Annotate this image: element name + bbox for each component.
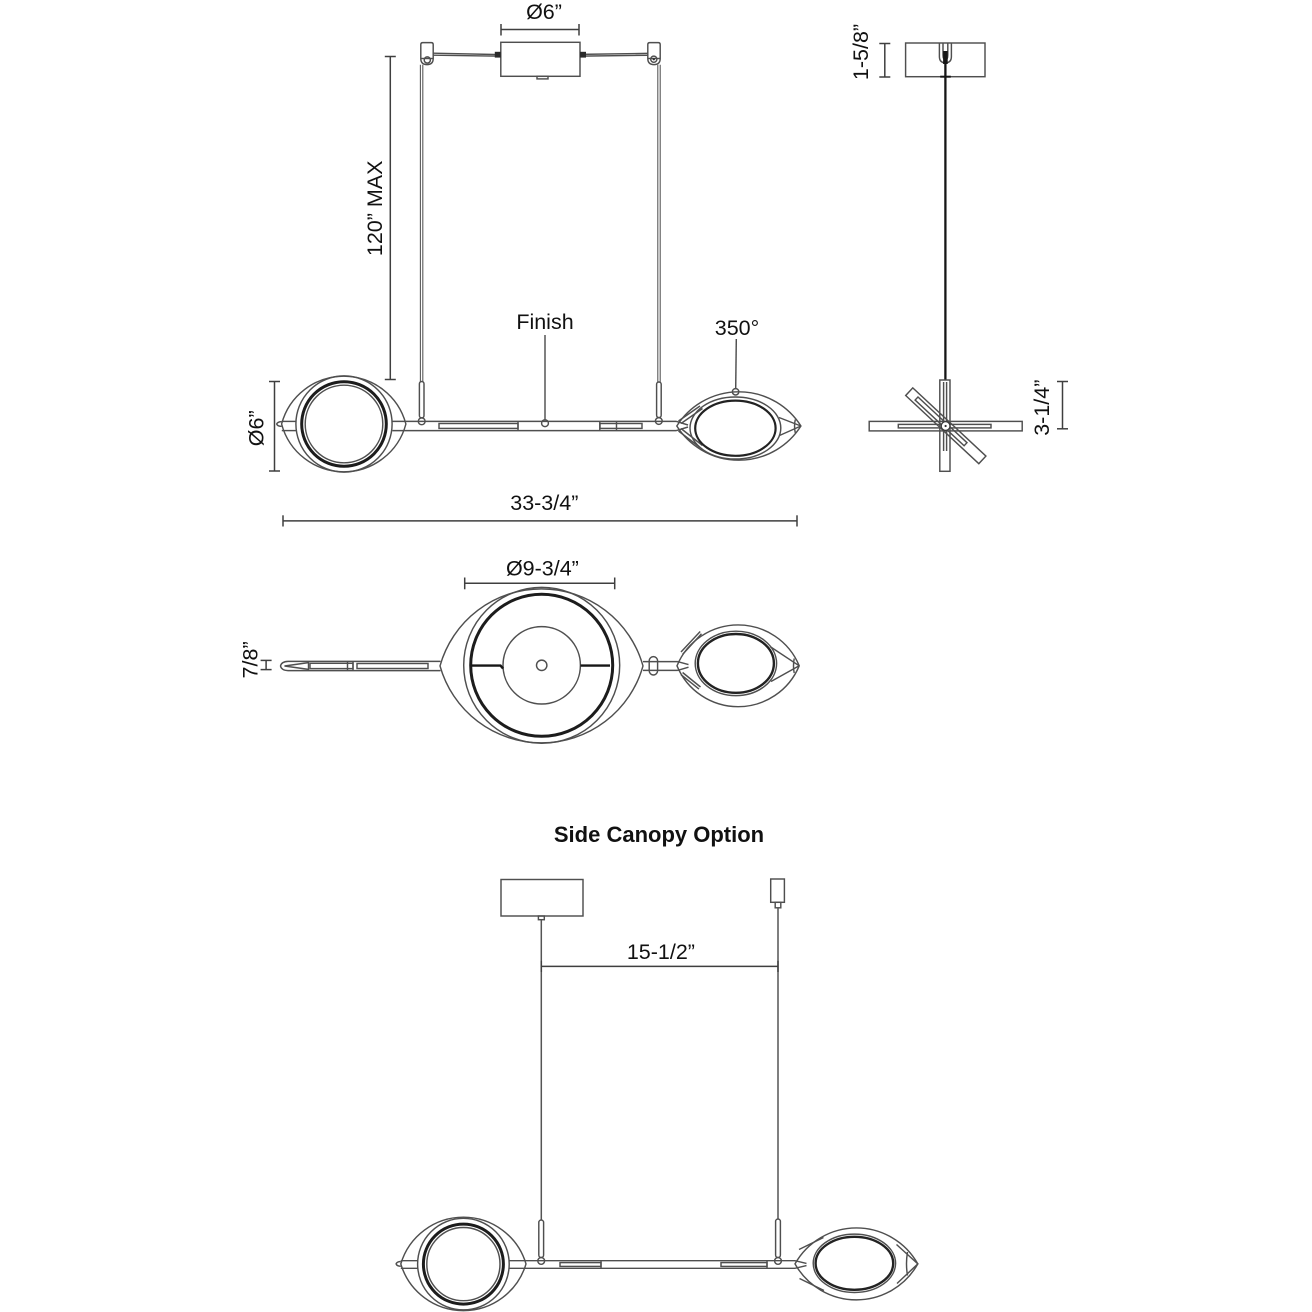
svg-text:120” MAX: 120” MAX	[363, 160, 387, 256]
svg-text:Side Canopy Option: Side Canopy Option	[554, 822, 764, 847]
svg-text:33-3/4”: 33-3/4”	[510, 491, 578, 515]
svg-text:15-1/2”: 15-1/2”	[627, 940, 695, 964]
svg-text:Finish: Finish	[516, 310, 573, 334]
svg-text:Ø6”: Ø6”	[526, 0, 562, 24]
svg-text:1-5/8”: 1-5/8”	[849, 24, 873, 80]
svg-text:Ø6”: Ø6”	[245, 410, 269, 446]
svg-text:3-1/4”: 3-1/4”	[1030, 380, 1054, 436]
svg-text:7/8”: 7/8”	[238, 641, 262, 678]
svg-text:Ø9-3/4”: Ø9-3/4”	[506, 557, 579, 581]
svg-text:350°: 350°	[715, 316, 759, 340]
